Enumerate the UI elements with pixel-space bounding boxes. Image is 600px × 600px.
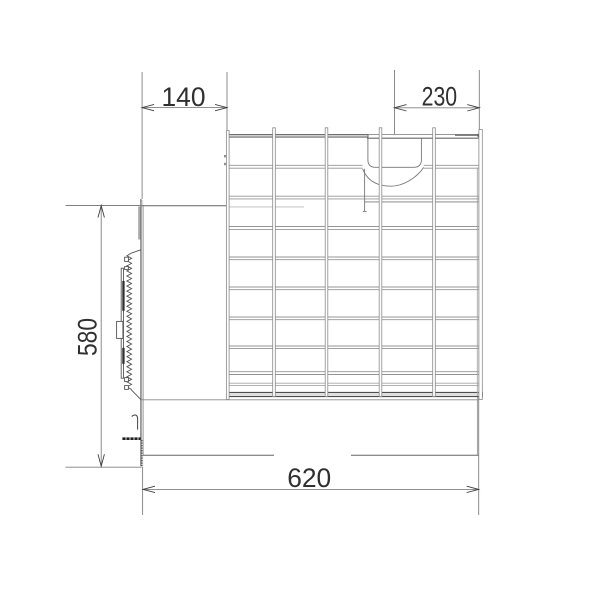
svg-text:580: 580 [72,318,102,356]
svg-text:230: 230 [422,81,458,111]
svg-text:620: 620 [287,463,331,493]
svg-text:140: 140 [162,82,206,112]
